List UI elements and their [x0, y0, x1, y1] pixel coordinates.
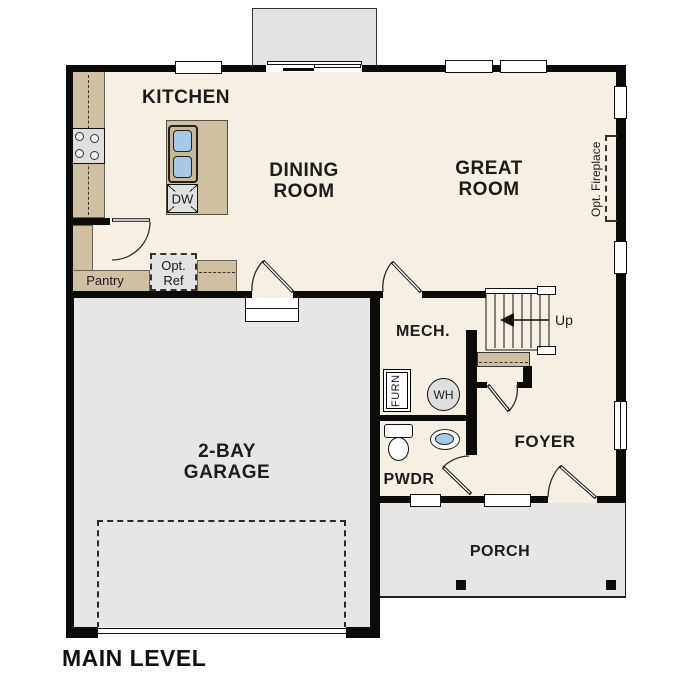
room-label-porch: PORCH: [470, 543, 530, 561]
room-label-garage: 2-BAY GARAGE: [184, 441, 270, 483]
room-label-kitchen: KITCHEN: [142, 87, 230, 109]
room-label-dining: DINING ROOM: [269, 160, 339, 202]
stair-up-arrow-icon: [500, 313, 549, 327]
room-label-great-line2: ROOM: [455, 179, 523, 200]
room-label-dining-line1: DINING: [269, 160, 339, 181]
door-swing-mech: [383, 262, 392, 292]
floor-plan: DW Pantry Opt. Ref FURN WH: [0, 0, 687, 687]
room-label-great: GREAT ROOM: [455, 158, 523, 200]
plan-title: MAIN LEVEL: [62, 645, 206, 672]
room-label-great-line1: GREAT: [455, 158, 523, 179]
room-label-pwdr: PWDR: [384, 471, 435, 489]
door-swing-pwdr: [443, 456, 469, 467]
room-label-dining-line2: ROOM: [269, 181, 339, 202]
door-swing-front-entry: [548, 466, 560, 497]
room-label-mech: MECH.: [396, 323, 450, 341]
room-label-foyer: FOYER: [514, 432, 575, 452]
doors-and-stairs-layer: [0, 0, 687, 687]
stairs-up-label: Up: [555, 312, 573, 328]
door-swing-foyer-closet: [509, 385, 517, 411]
door-swing-pantry: [112, 222, 150, 260]
room-label-garage-line2: GARAGE: [184, 462, 270, 483]
stair-treads: [486, 294, 549, 350]
door-swing-garage-entry: [252, 261, 263, 291]
room-label-garage-line1: 2-BAY: [184, 441, 270, 462]
